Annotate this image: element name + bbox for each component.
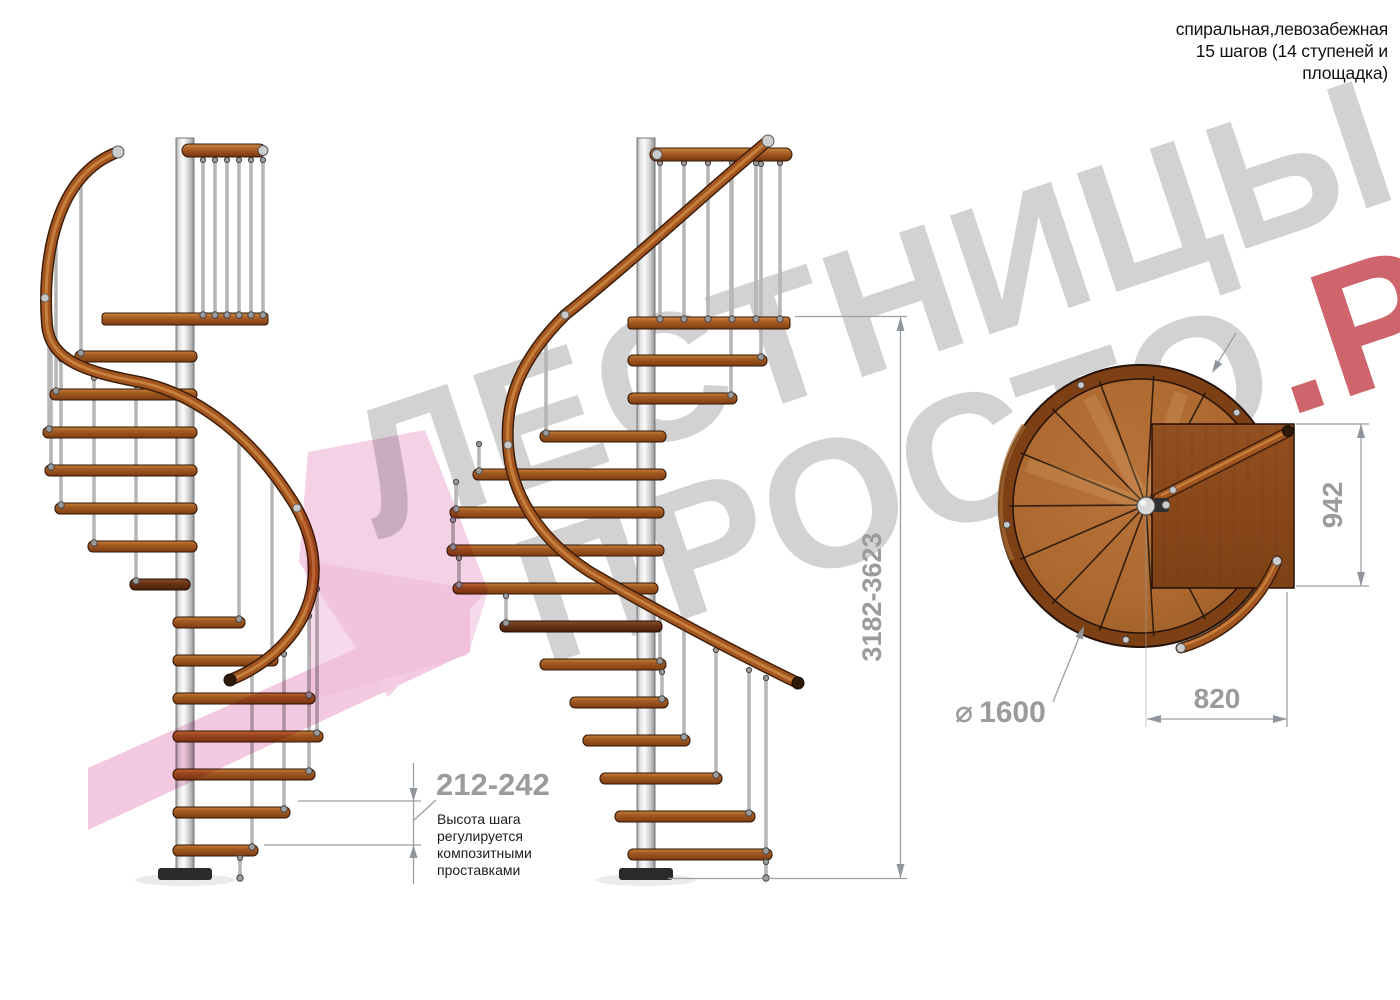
diameter-label: ⌀1600 — [955, 696, 1046, 729]
annotations: 3182-3623 212-242 Высота шага регулирует… — [0, 0, 1400, 1000]
landing-depth-label: 820 — [1194, 683, 1241, 714]
pitch-note: Высота шага регулируется композитными пр… — [437, 811, 532, 878]
svg-text:композитными: композитными — [437, 845, 532, 861]
step-pitch-label: 212-242 — [436, 767, 550, 802]
drawing-page: ЛЕСТНИЦЫ ПРОСТО.РУ — [0, 0, 1400, 1000]
landing-width-label: 942 — [1317, 482, 1348, 529]
title-line1: спиральная,левозабежная — [1176, 18, 1388, 40]
svg-text:проставками: проставками — [437, 862, 520, 878]
svg-text:Высота шага: Высота шага — [437, 811, 521, 827]
dim-landing-width: 942 — [1296, 424, 1369, 586]
title-block: спиральная,левозабежная 15 шагов (14 сту… — [1176, 18, 1388, 85]
dim-total-height: 3182-3623 — [668, 317, 907, 879]
svg-text:регулируется: регулируется — [437, 828, 523, 844]
title-line3: площадка) — [1176, 62, 1388, 84]
dim-landing-depth: 820 — [1146, 515, 1287, 727]
total-height-label: 3182-3623 — [857, 532, 887, 661]
dim-diameter: ⌀1600 — [955, 626, 1084, 729]
plan-pointer-arrow — [1212, 333, 1236, 373]
title-line2: 15 шагов (14 ступеней и — [1176, 40, 1388, 62]
